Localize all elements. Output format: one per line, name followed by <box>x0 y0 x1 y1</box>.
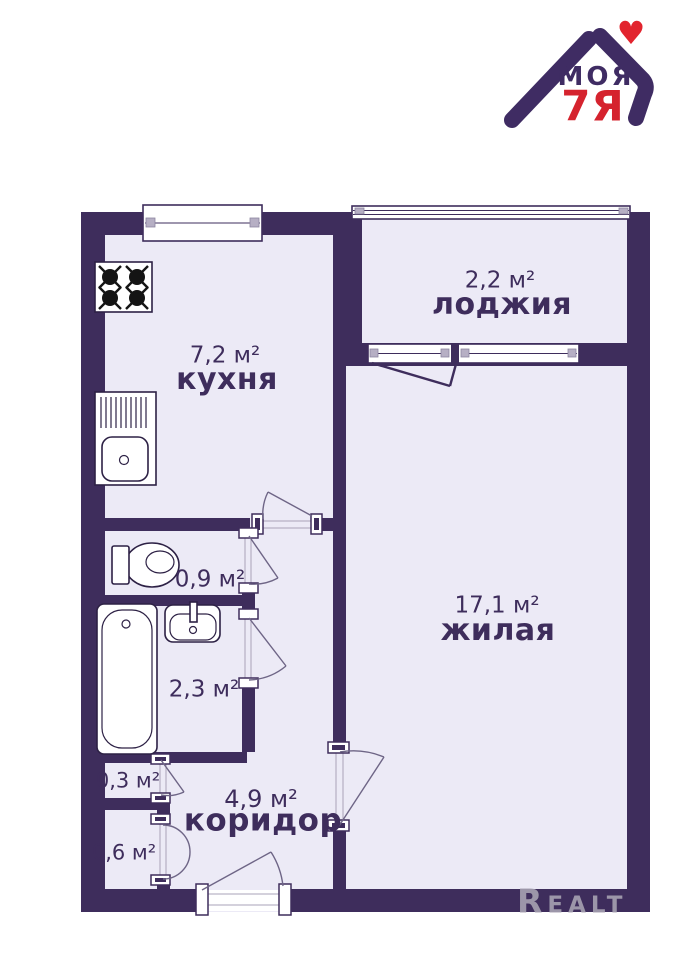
wall-central-upper <box>333 212 346 751</box>
bath-sink-faucet <box>190 602 197 622</box>
toilet-tank <box>112 546 129 584</box>
kitchen-name-label: кухня <box>176 365 278 395</box>
floorplan-drawing <box>0 0 687 954</box>
entrance-door-jamb <box>279 884 291 915</box>
kitchen-window-handle-right <box>250 218 259 227</box>
kitchen-door-jamb-core <box>314 518 319 530</box>
kitchen-sink-icon <box>95 392 156 485</box>
balcony-window-mullion <box>451 343 459 366</box>
toilet-icon <box>112 543 179 587</box>
loggia-glazing <box>352 206 630 219</box>
kitchen-sink-bowl <box>102 437 148 481</box>
closet-big-door-jamb-core <box>155 817 166 821</box>
wall-right <box>627 212 650 912</box>
kitchen-window-handle-left <box>146 218 155 227</box>
loggia-glazing-handle-right <box>619 208 628 214</box>
floorplan-page: 7,2 м² кухня 2,2 м² лоджия 17,1 м² жилая… <box>0 0 687 954</box>
wall-kitchen-bottom-left <box>105 518 250 531</box>
bath-area-label: 2,3 м² <box>169 679 239 702</box>
balcony-handle-3 <box>461 349 469 357</box>
balcony-handle-4 <box>568 349 576 357</box>
kitchen-window <box>143 205 262 241</box>
bathtub-outer <box>97 604 157 754</box>
wall-bottom-left <box>81 889 203 912</box>
loggia-glazing-handle-left <box>355 208 364 214</box>
wall-kitchen-bottom-right <box>322 518 346 531</box>
wall-bath-right <box>242 680 255 752</box>
logo-heart-icon: ♥ <box>617 14 646 52</box>
closet-big-area-label: 0,6 м² <box>92 843 156 864</box>
closet-small-area-label: 0,3 м² <box>96 771 160 792</box>
bath-sink-icon <box>165 602 220 642</box>
stove-icon <box>95 262 152 312</box>
wall-loggia-left <box>345 212 362 346</box>
toilet-bowl <box>125 543 179 587</box>
bathtub-icon <box>97 604 157 754</box>
balcony-handle-2 <box>441 349 449 357</box>
wall-left <box>81 212 105 912</box>
loggia-name-label: лоджия <box>432 290 572 320</box>
balcony-handle-1 <box>370 349 378 357</box>
bath-door-jamb <box>239 609 258 619</box>
corridor-name-label: коридор <box>184 806 342 837</box>
closet-small-door-jamb-core <box>155 796 166 800</box>
wall-closet-divider <box>105 798 157 810</box>
logo-mark: 7Я <box>561 82 625 131</box>
wc-area-label: 0,9 м² <box>175 569 245 592</box>
realt-watermark: Realt <box>517 882 627 921</box>
living-name-label: жилая <box>441 616 556 646</box>
entrance-opening <box>208 890 279 911</box>
living-door-jamb-core <box>332 745 345 750</box>
loggia-glazing-frame <box>352 206 630 219</box>
entrance-door-jamb <box>196 884 208 915</box>
